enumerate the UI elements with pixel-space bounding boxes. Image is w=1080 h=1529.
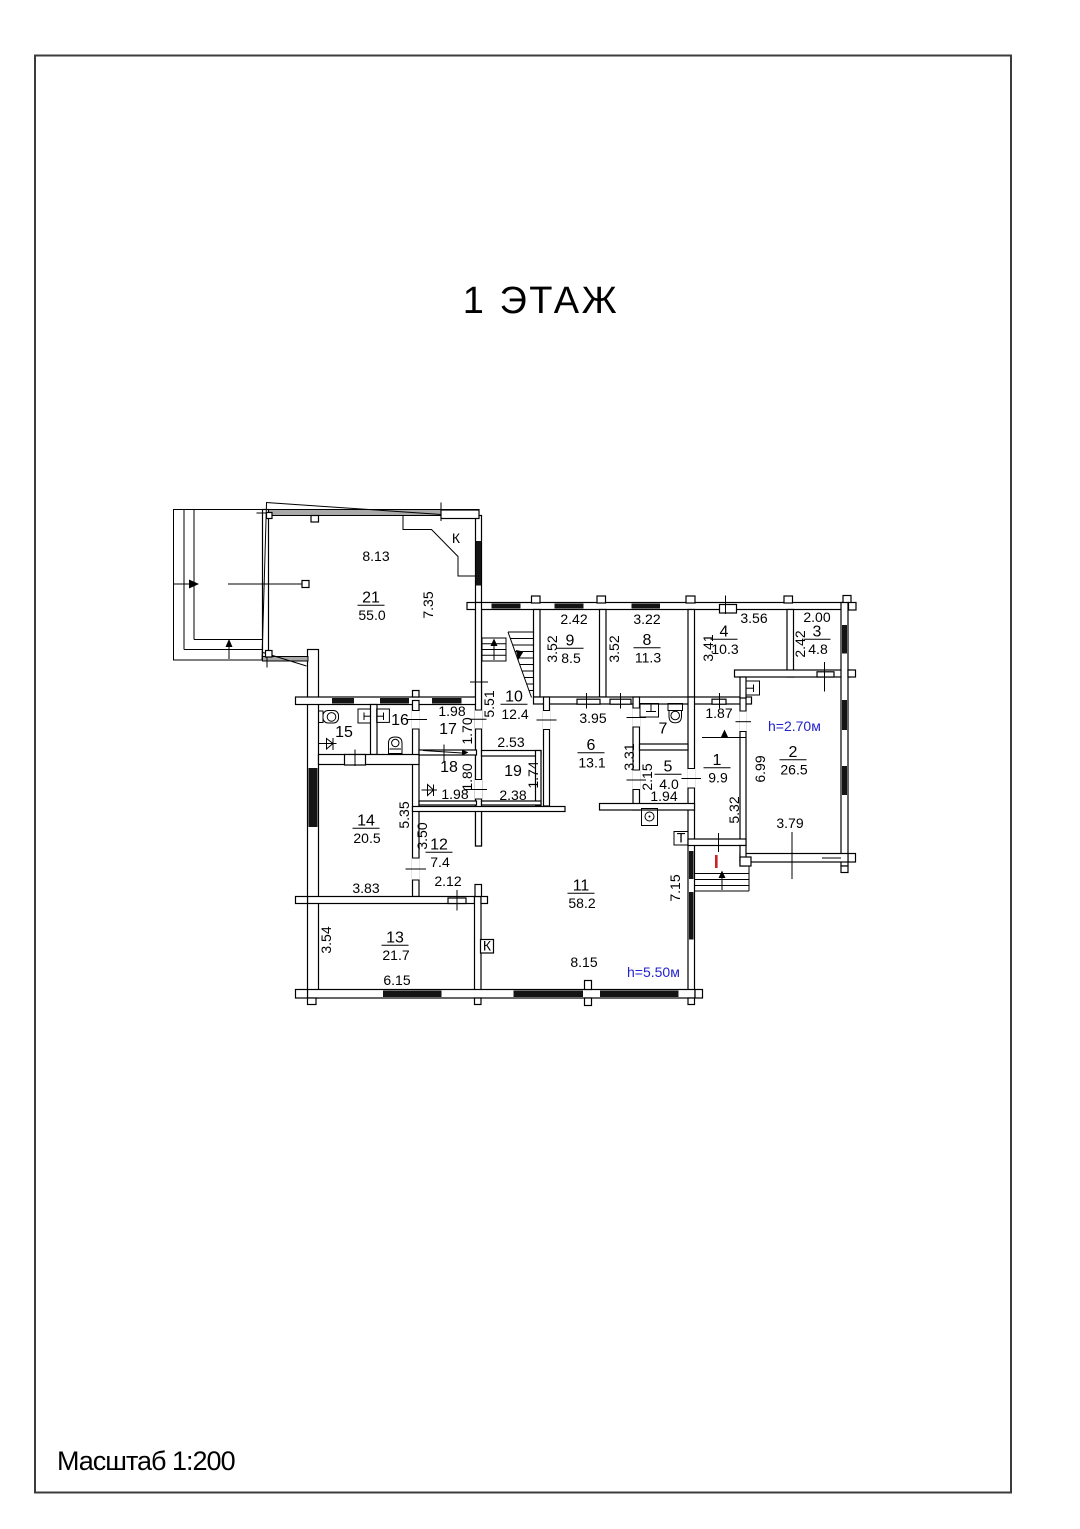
svg-text:20.5: 20.5: [353, 830, 380, 846]
svg-text:2.12: 2.12: [434, 873, 461, 889]
svg-text:1: 1: [713, 752, 722, 769]
svg-text:2.15: 2.15: [639, 763, 655, 790]
svg-text:1.74: 1.74: [525, 761, 541, 788]
svg-text:9: 9: [566, 633, 575, 650]
svg-text:13: 13: [386, 930, 404, 947]
svg-text:3.50: 3.50: [414, 822, 430, 849]
svg-text:3.52: 3.52: [606, 635, 622, 662]
svg-text:5.32: 5.32: [726, 796, 742, 823]
svg-text:10.3: 10.3: [711, 641, 738, 657]
svg-text:2: 2: [789, 744, 798, 761]
svg-text:3: 3: [813, 624, 822, 641]
svg-text:2.42: 2.42: [560, 611, 587, 627]
svg-text:9.9: 9.9: [708, 770, 728, 786]
svg-text:1.87: 1.87: [705, 705, 732, 721]
svg-text:8.5: 8.5: [561, 650, 581, 666]
svg-text:8.13: 8.13: [362, 548, 389, 564]
svg-text:7.35: 7.35: [420, 591, 436, 618]
svg-text:1 ЭТАЖ: 1 ЭТАЖ: [463, 280, 619, 322]
svg-text:h=2.70м: h=2.70м: [768, 718, 821, 734]
svg-text:21: 21: [362, 590, 380, 607]
svg-text:3.31: 3.31: [621, 743, 637, 770]
svg-text:3.79: 3.79: [776, 815, 803, 831]
svg-text:1.98: 1.98: [438, 703, 465, 719]
svg-text:К: К: [483, 938, 492, 954]
svg-text:3.22: 3.22: [633, 611, 660, 627]
svg-text:2.42: 2.42: [792, 630, 808, 657]
svg-text:17: 17: [439, 721, 457, 738]
svg-text:13.1: 13.1: [578, 755, 605, 771]
svg-text:7: 7: [659, 721, 668, 738]
svg-text:3.83: 3.83: [352, 880, 379, 896]
svg-text:11: 11: [573, 878, 590, 895]
svg-text:18: 18: [440, 759, 458, 776]
svg-text:14: 14: [357, 813, 375, 830]
svg-text:3.54: 3.54: [318, 926, 334, 953]
svg-text:21.7: 21.7: [382, 947, 409, 963]
svg-text:5.51: 5.51: [481, 690, 497, 717]
svg-text:4.8: 4.8: [808, 641, 828, 657]
svg-text:12: 12: [430, 837, 448, 854]
svg-text:6: 6: [587, 737, 596, 754]
svg-text:8: 8: [643, 632, 652, 649]
svg-text:1.98: 1.98: [441, 786, 468, 802]
svg-text:1.70: 1.70: [459, 717, 475, 744]
svg-text:3.56: 3.56: [740, 610, 767, 626]
svg-text:12.4: 12.4: [501, 706, 528, 722]
svg-text:К: К: [452, 530, 461, 546]
svg-text:2.53: 2.53: [497, 734, 524, 750]
svg-text:58.2: 58.2: [568, 895, 595, 911]
svg-text:6.99: 6.99: [752, 755, 768, 782]
svg-text:6.15: 6.15: [383, 972, 410, 988]
svg-text:5: 5: [664, 759, 673, 776]
svg-text:h=5.50м: h=5.50м: [627, 964, 680, 980]
svg-text:1.94: 1.94: [650, 788, 677, 804]
svg-text:3.52: 3.52: [544, 635, 560, 662]
svg-text:16: 16: [391, 712, 409, 729]
svg-text:55.0: 55.0: [358, 607, 385, 623]
svg-text:5.35: 5.35: [396, 801, 412, 828]
svg-text:3.95: 3.95: [579, 710, 606, 726]
svg-text:7.4: 7.4: [430, 854, 450, 870]
svg-text:8.15: 8.15: [570, 954, 597, 970]
svg-text:Масштаб 1:200: Масштаб 1:200: [57, 1446, 235, 1476]
svg-text:4: 4: [720, 624, 729, 641]
svg-text:10: 10: [505, 689, 523, 706]
svg-text:Т: Т: [677, 830, 686, 846]
svg-text:11.3: 11.3: [635, 650, 661, 666]
svg-text:2.38: 2.38: [499, 787, 526, 803]
svg-text:15: 15: [335, 724, 353, 741]
svg-text:7.15: 7.15: [667, 874, 683, 901]
svg-text:26.5: 26.5: [780, 762, 807, 778]
svg-text:19: 19: [504, 763, 522, 780]
